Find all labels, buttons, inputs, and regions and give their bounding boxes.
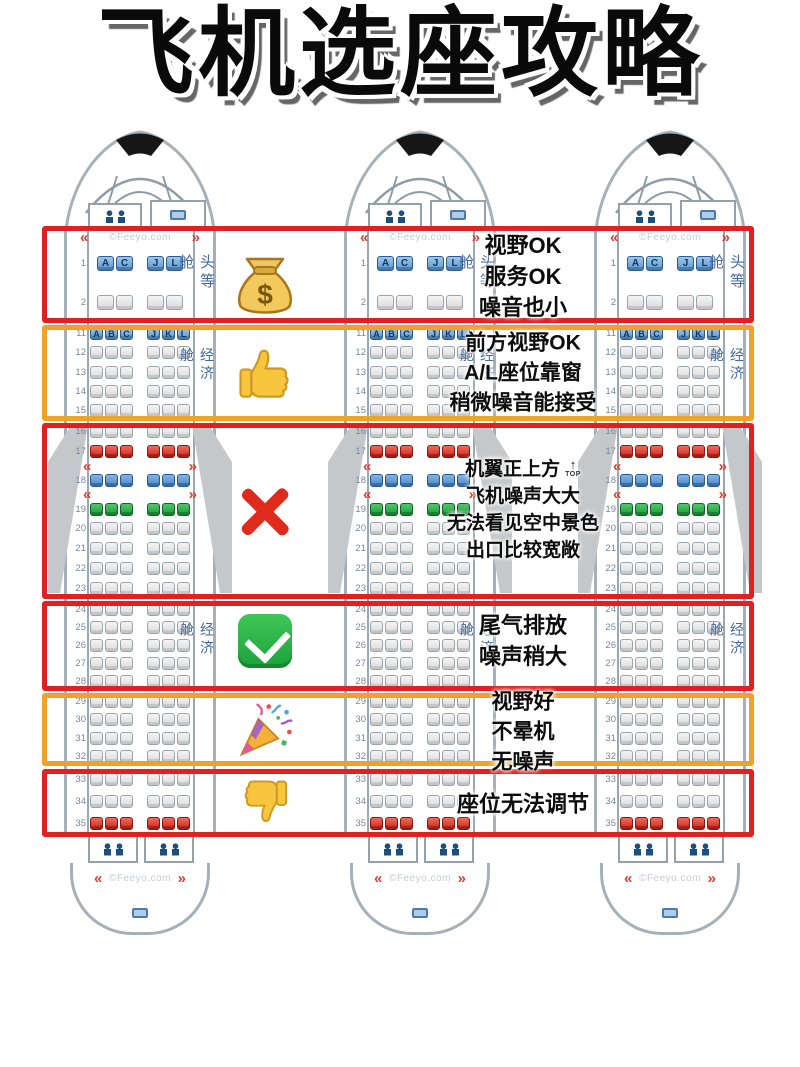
watermark: ©Feeyo.com — [639, 873, 701, 884]
exit-chevron-right-icon: » — [458, 874, 466, 883]
person-icon — [395, 843, 404, 856]
annotation-line: 稍微噪音能接受 — [450, 388, 597, 418]
galley-icon — [700, 210, 716, 220]
annotation-line: 座位无法调节 — [457, 788, 589, 819]
page-title: 飞机选座攻略 — [0, 0, 800, 109]
tail-lavatory-left — [88, 835, 138, 863]
annotation-line: 前方视野OK — [450, 328, 597, 358]
airplane-tail: «©Feeyo.com» — [590, 835, 750, 935]
annotation-text: 机翼正上方 — [465, 459, 560, 480]
person-icon — [689, 843, 698, 856]
annotation-line: 噪声稍大 — [479, 641, 567, 672]
annotation-text: A/L座位靠窗 — [464, 361, 582, 384]
annotation-line: 不晕机 — [492, 717, 555, 747]
annotation-text: 飞机噪声大大 — [466, 486, 580, 507]
annotation-text: 稍微噪音能接受 — [450, 391, 597, 414]
zone-annotation-last-rows: 座位无法调节 — [457, 788, 589, 819]
zone-box-rear-view — [42, 693, 754, 766]
tail-lavatory-right — [144, 835, 194, 863]
exit-chevron-right-icon: » — [178, 874, 186, 883]
emoji-cross-mark-icon — [234, 481, 296, 543]
person-icon — [635, 210, 644, 223]
person-icon — [397, 210, 406, 223]
zone-box-economy-front — [42, 325, 754, 421]
svg-text:$: $ — [257, 279, 273, 310]
zone-annotation-economy-front: 前方视野OKA/L座位靠窗稍微噪音能接受 — [450, 328, 597, 417]
annotation-text: 视野OK — [484, 233, 561, 258]
emoji-money-bag-icon: $ — [233, 255, 297, 319]
emoji-check-mark-icon — [238, 614, 292, 668]
galley-icon — [132, 908, 148, 918]
person-icon — [645, 843, 654, 856]
annotation-line: 视野OK — [479, 230, 567, 261]
exit-chevron-right-icon: » — [708, 874, 716, 883]
person-icon — [159, 843, 168, 856]
annotation-line: 机翼正上方↑TOP — [447, 457, 599, 484]
zone-box-first-class — [42, 226, 754, 323]
person-icon — [115, 843, 124, 856]
exit-chevron-left-icon: « — [624, 874, 632, 883]
zone-annotation-rear-view: 视野好不晕机无噪声 — [492, 687, 555, 776]
person-icon — [171, 843, 180, 856]
airplane-tail: «©Feeyo.com» — [60, 835, 220, 935]
person-icon — [105, 210, 114, 223]
exit-marker-row: «©Feeyo.com» — [74, 872, 206, 885]
person-icon — [383, 843, 392, 856]
annotation-line: A/L座位靠窗 — [450, 358, 597, 388]
zone-box-rear-engine — [42, 601, 754, 691]
zone-annotation-first-class: 视野OK服务OK噪音也小 — [479, 230, 567, 324]
galley-icon — [662, 908, 678, 918]
person-icon — [633, 843, 642, 856]
zone-annotation-rear-engine: 尾气排放噪声稍大 — [479, 610, 567, 672]
annotation-line: 视野好 — [492, 687, 555, 717]
exit-chevron-left-icon: « — [94, 874, 102, 883]
annotation-text: 服务OK — [484, 264, 561, 289]
emoji-party-popper-icon — [235, 701, 295, 761]
person-icon — [439, 843, 448, 856]
watermark: ©Feeyo.com — [109, 873, 171, 884]
tail-lavatory-left — [368, 835, 418, 863]
emoji-thumbs-down-icon — [240, 776, 290, 826]
annotation-text: 噪声稍大 — [479, 644, 567, 669]
annotation-line: 尾气排放 — [479, 610, 567, 641]
airplane-tail: «©Feeyo.com» — [340, 835, 500, 935]
exit-marker-row: «©Feeyo.com» — [604, 872, 736, 885]
airplane-nose — [340, 125, 500, 230]
person-icon — [103, 843, 112, 856]
top-marker-icon: ↑TOP — [565, 460, 581, 480]
annotation-line: 出口比较宽敞 — [447, 538, 599, 565]
zone-box-last-rows — [42, 769, 754, 837]
top-marker-label: TOP — [565, 470, 581, 480]
annotation-text: 出口比较宽敞 — [466, 540, 580, 561]
up-arrow-icon: ↑ — [570, 460, 577, 470]
annotation-text: 座位无法调节 — [457, 791, 589, 816]
person-icon — [385, 210, 394, 223]
tail-lavatory-left — [618, 835, 668, 863]
exit-marker-row: «©Feeyo.com» — [354, 872, 486, 885]
watermark: ©Feeyo.com — [389, 873, 451, 884]
person-icon — [701, 843, 710, 856]
annotation-line: 无法看见空中景色 — [447, 511, 599, 538]
galley-icon — [170, 210, 186, 220]
person-icon — [117, 210, 126, 223]
airplane-nose — [60, 125, 220, 230]
zone-annotation-over-wing: 机翼正上方↑TOP飞机噪声大大无法看见空中景色出口比较宽敞 — [447, 457, 599, 565]
annotation-line: 飞机噪声大大 — [447, 484, 599, 511]
zone-box-over-wing — [42, 423, 754, 599]
annotation-text: 尾气排放 — [479, 613, 567, 638]
annotation-text: 噪音也小 — [479, 296, 567, 321]
annotation-text: 视野好 — [492, 690, 555, 713]
annotation-text: 无噪声 — [492, 750, 555, 773]
annotation-text: 无法看见空中景色 — [447, 513, 599, 534]
annotation-line: 噪音也小 — [479, 293, 567, 324]
seat-selection-poster: 飞机选座攻略 «©Feeyo.com»1ACJL2头等舱11ABCJKL1213… — [0, 0, 800, 1067]
exit-chevron-left-icon: « — [374, 874, 382, 883]
tail-lavatory-right — [424, 835, 474, 863]
person-icon — [451, 843, 460, 856]
person-icon — [647, 210, 656, 223]
annotation-line: 无噪声 — [492, 747, 555, 777]
emoji-thumbs-up-icon — [236, 345, 294, 403]
annotation-text: 不晕机 — [492, 720, 555, 743]
galley-icon — [412, 908, 428, 918]
annotation-line: 服务OK — [479, 261, 567, 292]
airplane-nose — [590, 125, 750, 230]
annotation-text: 前方视野OK — [465, 331, 581, 354]
tail-lavatory-right — [674, 835, 724, 863]
galley-icon — [450, 210, 466, 220]
